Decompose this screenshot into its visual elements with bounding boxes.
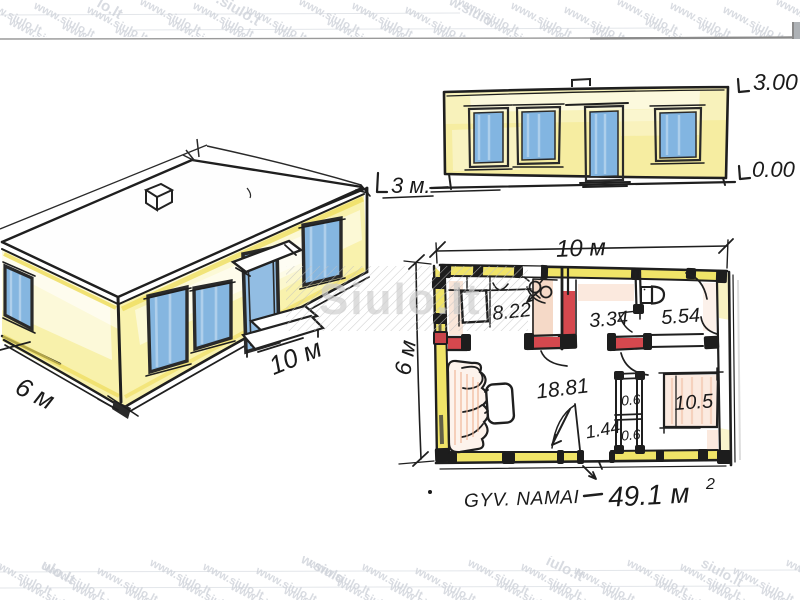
svg-text:2: 2 (705, 476, 715, 493)
svg-text:0.6: 0.6 (620, 426, 641, 444)
svg-text:3.34: 3.34 (588, 307, 628, 332)
svg-text:0.6: 0.6 (620, 391, 641, 409)
svg-text:Siulo.lt: Siulo.lt (319, 275, 482, 324)
svg-text:0.00: 0.00 (752, 157, 796, 182)
svg-text:10 м: 10 м (556, 234, 607, 263)
svg-text:5.54: 5.54 (660, 304, 700, 329)
svg-text:GYV. NAMAI: GYV. NAMAI (464, 487, 580, 512)
svg-text:3 м.: 3 м. (391, 173, 431, 198)
svg-text:10.5: 10.5 (673, 390, 714, 415)
svg-text:49.1 м: 49.1 м (607, 477, 690, 512)
svg-text:3.00: 3.00 (753, 69, 798, 95)
